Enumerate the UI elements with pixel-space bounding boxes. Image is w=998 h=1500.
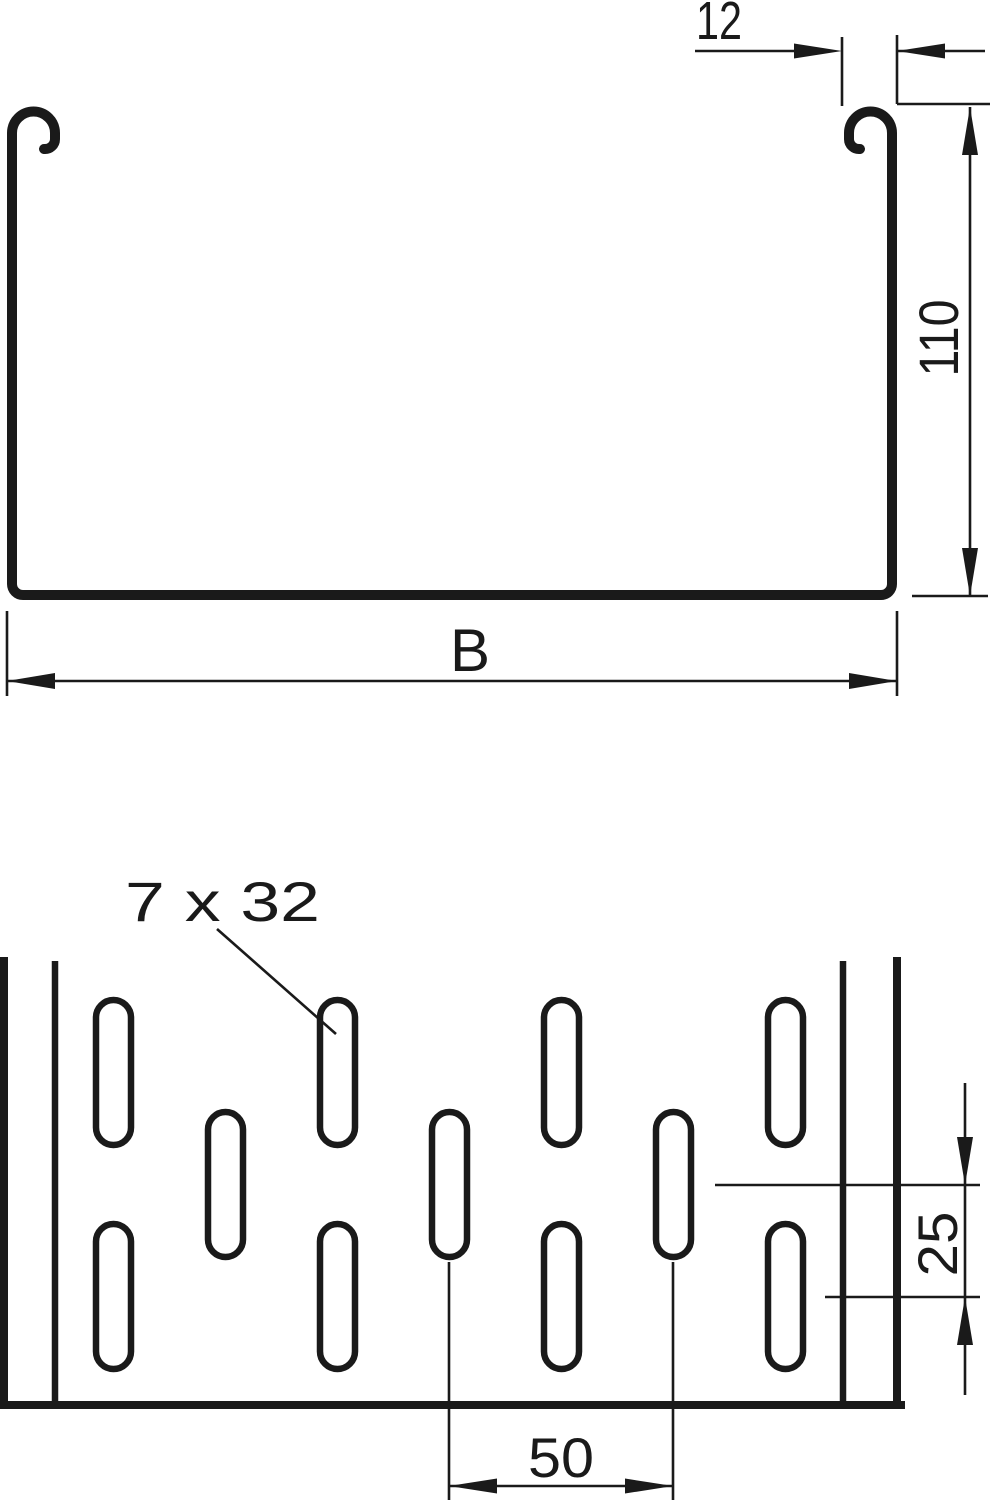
slot-hole	[96, 1000, 131, 1145]
slot-hole	[432, 1112, 467, 1257]
dim-slot-pitch-label: 50	[528, 1426, 594, 1489]
arrowhead-right-icon	[794, 44, 842, 59]
slot-size-label: 7 x 32	[125, 870, 320, 933]
slot-hole	[656, 1112, 691, 1257]
slot-hole	[544, 1224, 579, 1369]
dim-overall-width: B	[7, 611, 897, 696]
slot-hole	[768, 1224, 803, 1369]
plan-view: 7 x 32 25 50	[0, 870, 980, 1500]
arrowhead-left-icon	[449, 1479, 497, 1494]
slot-hole	[96, 1224, 131, 1369]
dim-flange-width-label: 12	[696, 0, 742, 51]
slot-hole	[208, 1112, 243, 1257]
dim-side-height-label: 110	[907, 300, 970, 377]
arrowhead-down-icon	[957, 1137, 973, 1185]
dim-flange-width: 12	[695, 0, 990, 106]
slot-size-callout: 7 x 32	[125, 870, 336, 1034]
channel-profile-outline	[12, 112, 892, 596]
leader-line	[217, 929, 336, 1034]
dim-row-offset-label: 25	[906, 1212, 969, 1277]
arrowhead-right-icon	[625, 1479, 673, 1494]
extension-line	[842, 35, 990, 106]
slot-hole	[320, 1224, 355, 1369]
arrowhead-up-icon	[962, 107, 978, 155]
dim-overall-width-label: B	[450, 617, 490, 684]
arrowhead-left-icon	[7, 673, 55, 689]
technical-drawing-page: 12 110 B	[0, 0, 998, 1500]
slot-hole	[320, 1000, 355, 1145]
dim-row-offset: 25	[715, 1083, 980, 1395]
arrowhead-up-icon	[957, 1297, 973, 1345]
arrowhead-down-icon	[962, 548, 978, 596]
arrowhead-left-icon	[897, 44, 945, 59]
slot-hole	[544, 1000, 579, 1145]
dim-side-height: 110	[907, 107, 988, 596]
technical-drawing-canvas: 12 110 B	[0, 0, 998, 1500]
slot-hole	[768, 1000, 803, 1145]
cross-section-view: 12 110 B	[7, 0, 990, 696]
arrowhead-right-icon	[849, 673, 897, 689]
